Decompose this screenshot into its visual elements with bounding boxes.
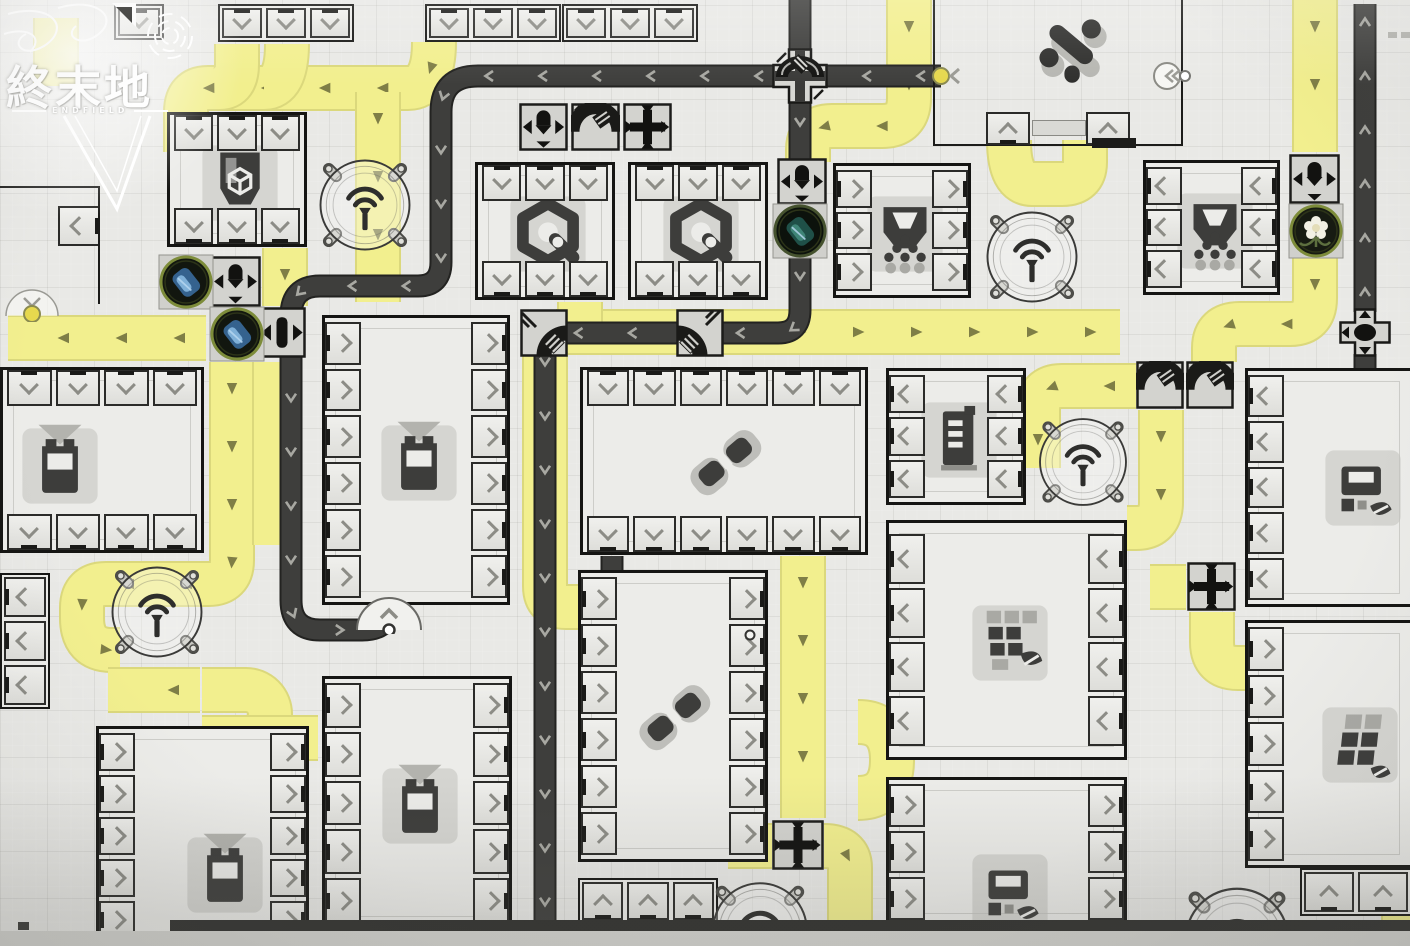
- chevron-icon: [620, 10, 640, 30]
- chevron-icon: [589, 636, 609, 656]
- port-tick: [890, 713, 894, 729]
- building-crusher[interactable]: [1143, 160, 1280, 295]
- port-tick: [580, 292, 596, 296]
- chevron-icon: [333, 333, 353, 353]
- building-assembler[interactable]: [475, 162, 615, 300]
- io-port[interactable]: [4, 621, 46, 661]
- splitter-icon: [1289, 154, 1340, 204]
- signal-tower[interactable]: [306, 146, 424, 264]
- io-port[interactable]: [473, 878, 509, 923]
- io-port[interactable]: [222, 8, 262, 38]
- chevron-icon: [333, 744, 353, 764]
- port-tick: [666, 9, 682, 13]
- port-tick: [832, 547, 848, 551]
- chevron-icon: [645, 170, 665, 190]
- io-port[interactable]: [726, 370, 768, 406]
- splitter-icon: [777, 158, 827, 205]
- io-port[interactable]: [889, 534, 925, 584]
- io-port[interactable]: [987, 417, 1023, 455]
- io-port[interactable]: [889, 831, 925, 874]
- io-port[interactable]: [99, 775, 135, 813]
- io-port[interactable]: [1248, 375, 1284, 417]
- io-port[interactable]: [1248, 558, 1284, 600]
- port-tick: [186, 239, 202, 243]
- io-port[interactable]: [99, 733, 135, 771]
- io-port[interactable]: [932, 212, 968, 250]
- io-port[interactable]: [325, 781, 361, 826]
- io-port[interactable]: [722, 261, 761, 297]
- ore-node[interactable]: [770, 201, 830, 261]
- chevron-icon: [68, 519, 88, 539]
- port-tick: [301, 828, 305, 844]
- io-port[interactable]: [118, 8, 160, 36]
- building-refiner[interactable]: [580, 367, 868, 555]
- port-tick: [537, 292, 553, 296]
- io-port[interactable]: [325, 462, 361, 505]
- io-port[interactable]: [889, 460, 925, 498]
- io-port[interactable]: [310, 8, 350, 38]
- building-entry-dome: [354, 592, 424, 634]
- chevron-icon: [844, 221, 864, 241]
- chevron-icon: [481, 891, 501, 911]
- io-port[interactable]: [678, 261, 717, 297]
- io-port[interactable]: [1088, 642, 1124, 692]
- io-port[interactable]: [654, 8, 694, 38]
- port-tick: [578, 9, 594, 13]
- io-port[interactable]: [1241, 167, 1277, 205]
- port-tick: [167, 371, 183, 375]
- chevron-icon: [645, 521, 665, 541]
- io-port[interactable]: [325, 878, 361, 923]
- port-tick: [1321, 907, 1337, 911]
- port-tick: [326, 475, 330, 491]
- belt-splitter-tile[interactable]: [777, 158, 827, 205]
- belt-merger-tile[interactable]: [772, 820, 824, 870]
- chevron-icon: [1096, 657, 1116, 677]
- port-tick: [890, 844, 894, 860]
- io-port[interactable]: [261, 115, 300, 151]
- io-port[interactable]: [582, 882, 623, 920]
- port-tick: [326, 844, 330, 860]
- io-port[interactable]: [1088, 534, 1124, 584]
- io-port[interactable]: [729, 577, 765, 620]
- io-port[interactable]: [889, 588, 925, 638]
- io-port[interactable]: [1248, 421, 1284, 463]
- io-port[interactable]: [587, 370, 629, 406]
- io-port[interactable]: [325, 683, 361, 728]
- port-tick: [1000, 140, 1016, 144]
- chevron-icon: [593, 894, 613, 914]
- chevron-icon: [576, 10, 596, 30]
- crossed-parts-decoration: [1026, 2, 1122, 102]
- io-port[interactable]: [587, 516, 629, 552]
- io-port[interactable]: [270, 775, 306, 813]
- io-port[interactable]: [471, 369, 507, 412]
- chevron-icon: [897, 469, 917, 489]
- ore-node[interactable]: [156, 252, 216, 312]
- flower-resource-node[interactable]: [1286, 201, 1346, 261]
- belt-corner-tile[interactable]: [520, 309, 568, 357]
- chevron-icon: [844, 179, 864, 199]
- port-tick: [326, 746, 330, 762]
- chevron-icon: [897, 549, 917, 569]
- refiner-icon: [633, 676, 719, 762]
- port-tick: [837, 181, 841, 197]
- chevron-icon: [731, 266, 751, 286]
- io-port[interactable]: [471, 462, 507, 505]
- io-port[interactable]: [325, 369, 361, 412]
- port-tick: [485, 9, 501, 13]
- belt-corner-tile[interactable]: [676, 309, 724, 357]
- chevron-icon: [333, 520, 353, 540]
- port-tick: [890, 386, 894, 402]
- io-port[interactable]: [153, 514, 198, 550]
- io-port[interactable]: [525, 165, 564, 201]
- io-port[interactable]: [429, 8, 469, 38]
- port-tick: [1147, 178, 1151, 194]
- io-port[interactable]: [581, 577, 617, 620]
- chevron-icon: [107, 826, 127, 846]
- building-greenhouse[interactable]: [886, 520, 1127, 760]
- chevron-icon: [589, 824, 609, 844]
- building-battery[interactable]: [0, 367, 204, 553]
- port-tick: [504, 844, 508, 860]
- io-port[interactable]: [325, 322, 361, 365]
- port-tick: [272, 239, 288, 243]
- chevron-icon: [483, 10, 503, 30]
- battery-icon: [376, 420, 462, 506]
- io-port[interactable]: [836, 212, 872, 250]
- io-port[interactable]: [56, 370, 101, 406]
- io-port[interactable]: [270, 817, 306, 855]
- flower-icon: [1286, 201, 1346, 261]
- port-tick: [167, 545, 183, 549]
- io-port[interactable]: [471, 322, 507, 365]
- io-port[interactable]: [7, 370, 52, 406]
- port-tick: [229, 116, 245, 120]
- signal-tower-icon: [1026, 405, 1140, 519]
- yard-circle-port[interactable]: [1147, 60, 1191, 92]
- io-port[interactable]: [325, 415, 361, 458]
- road-crossing-tile[interactable]: [772, 48, 828, 104]
- io-port[interactable]: [473, 683, 509, 728]
- io-port[interactable]: [1248, 467, 1284, 509]
- io-port[interactable]: [819, 370, 861, 406]
- io-port[interactable]: [932, 253, 968, 291]
- port-tick: [600, 547, 616, 551]
- ore-node[interactable]: [207, 304, 267, 364]
- building-floor: [335, 328, 497, 592]
- bridge-icon: [1136, 361, 1184, 409]
- building-solar[interactable]: [1245, 620, 1410, 868]
- io-port[interactable]: [889, 375, 925, 413]
- port-strip[interactable]: [578, 878, 718, 924]
- io-port[interactable]: [722, 165, 761, 201]
- belt-bridge-tile[interactable]: [1186, 361, 1234, 409]
- io-port[interactable]: [174, 208, 213, 244]
- io-port[interactable]: [680, 516, 722, 552]
- port-tick: [504, 746, 508, 762]
- belt-endpoint-port[interactable]: [931, 66, 965, 86]
- io-port[interactable]: [1088, 588, 1124, 638]
- io-port[interactable]: [581, 812, 617, 855]
- port-tick: [647, 166, 663, 170]
- chevron-icon: [1249, 259, 1269, 279]
- io-port[interactable]: [836, 170, 872, 208]
- io-port[interactable]: [729, 765, 765, 808]
- building-agri[interactable]: [886, 777, 1127, 927]
- io-port[interactable]: [1358, 872, 1408, 912]
- io-port[interactable]: [7, 514, 52, 550]
- port-tick: [100, 912, 104, 928]
- port-tick: [1249, 688, 1253, 704]
- port-tick: [502, 335, 506, 351]
- io-port[interactable]: [1088, 831, 1124, 874]
- port-tick: [785, 371, 801, 375]
- io-port[interactable]: [627, 882, 668, 920]
- io-port[interactable]: [889, 784, 925, 827]
- port-tick: [760, 826, 764, 842]
- io-port[interactable]: [104, 514, 149, 550]
- chevron-icon: [578, 170, 598, 190]
- io-port[interactable]: [569, 165, 608, 201]
- io-port[interactable]: [482, 261, 521, 297]
- chevron-icon: [897, 657, 917, 677]
- building-floor: [899, 533, 1114, 747]
- port-strip[interactable]: [0, 573, 50, 709]
- building-battery[interactable]: [322, 315, 510, 605]
- port-tick: [1375, 907, 1391, 911]
- io-port[interactable]: [1241, 209, 1277, 247]
- chevron-icon: [479, 567, 499, 587]
- circle-port-icon: [1147, 60, 1191, 92]
- io-port[interactable]: [633, 370, 675, 406]
- chevron-icon: [691, 521, 711, 541]
- chevron-icon: [278, 742, 298, 762]
- io-port[interactable]: [104, 370, 149, 406]
- io-port[interactable]: [517, 8, 557, 38]
- chevron-icon: [439, 10, 459, 30]
- io-port[interactable]: [1146, 167, 1182, 205]
- io-port[interactable]: [889, 417, 925, 455]
- solar-icon: [1317, 702, 1403, 788]
- io-port[interactable]: [772, 516, 814, 552]
- io-port[interactable]: [1248, 770, 1284, 814]
- io-port[interactable]: [889, 642, 925, 692]
- port-tick: [760, 591, 764, 607]
- port-strip[interactable]: [1300, 868, 1410, 916]
- chevron-icon: [1256, 734, 1276, 754]
- io-port[interactable]: [610, 8, 650, 38]
- io-port[interactable]: [4, 577, 46, 617]
- port-strip[interactable]: [425, 4, 561, 42]
- port-strip[interactable]: [218, 4, 354, 42]
- ore-icon: [156, 252, 216, 312]
- chevron-icon: [276, 10, 296, 30]
- building-battery[interactable]: [322, 676, 512, 930]
- io-port[interactable]: [473, 829, 509, 874]
- building-battery[interactable]: [96, 726, 309, 946]
- chevron-icon: [479, 473, 499, 493]
- conveyor-belt-surface: [264, 44, 287, 88]
- port-tick: [100, 786, 104, 802]
- io-port[interactable]: [1248, 512, 1284, 554]
- io-port[interactable]: [325, 509, 361, 552]
- io-port[interactable]: [1088, 784, 1124, 827]
- io-port[interactable]: [680, 370, 722, 406]
- io-port[interactable]: [635, 165, 674, 201]
- io-port[interactable]: [1248, 675, 1284, 719]
- port-strip[interactable]: [114, 4, 164, 40]
- chevron-icon: [15, 587, 35, 607]
- building-smelter[interactable]: [167, 112, 307, 247]
- port-tick: [5, 589, 9, 605]
- port-tick: [5, 633, 9, 649]
- building-crusher[interactable]: [833, 163, 971, 298]
- io-port[interactable]: [729, 671, 765, 714]
- io-port[interactable]: [726, 516, 768, 552]
- port-tick: [582, 732, 586, 748]
- io-port[interactable]: [1241, 250, 1277, 288]
- port-tick: [502, 522, 506, 538]
- io-port[interactable]: [987, 375, 1023, 413]
- io-port[interactable]: [473, 8, 513, 38]
- io-port[interactable]: [566, 8, 606, 38]
- io-port[interactable]: [270, 733, 306, 771]
- port-tick: [1272, 178, 1276, 194]
- io-port[interactable]: [270, 859, 306, 897]
- chevron-icon: [1154, 259, 1174, 279]
- io-port[interactable]: [99, 859, 135, 897]
- road-junction-node[interactable]: [1339, 308, 1391, 357]
- port-tick: [739, 371, 755, 375]
- conveyor-belt-surface: [220, 44, 237, 88]
- port-tick: [326, 569, 330, 585]
- io-port[interactable]: [4, 665, 46, 705]
- io-port[interactable]: [99, 817, 135, 855]
- io-port[interactable]: [471, 555, 507, 598]
- chevron-icon: [19, 519, 39, 539]
- port-strip[interactable]: [562, 4, 698, 42]
- signal-tower[interactable]: [98, 553, 216, 671]
- chevron-icon: [578, 266, 598, 286]
- io-port[interactable]: [217, 208, 256, 244]
- chevron-icon: [1096, 711, 1116, 731]
- chevron-icon: [940, 221, 960, 241]
- belt-splitter-tile[interactable]: [1289, 154, 1340, 204]
- port-connector: [1032, 120, 1086, 136]
- io-port[interactable]: [217, 115, 256, 151]
- crossing-icon: [772, 48, 828, 104]
- chevron-icon: [1096, 795, 1116, 815]
- signal-tower[interactable]: [973, 198, 1091, 316]
- io-port[interactable]: [471, 509, 507, 552]
- chevron-icon: [278, 826, 298, 846]
- io-port[interactable]: [581, 765, 617, 808]
- port-tick: [760, 638, 764, 654]
- building-agri[interactable]: [1245, 368, 1410, 607]
- belt-merger-tile[interactable]: [1187, 562, 1236, 611]
- belt-splitter-tile[interactable]: [519, 103, 568, 151]
- map-canvas[interactable]: 終末地 ENDFIELD: [0, 0, 1410, 946]
- io-port[interactable]: [889, 877, 925, 920]
- building-refiner[interactable]: [578, 570, 768, 862]
- building-floor: [593, 380, 855, 542]
- chevron-icon: [598, 375, 618, 395]
- io-port[interactable]: [525, 261, 564, 297]
- signal-tower[interactable]: [1026, 405, 1140, 519]
- io-port[interactable]: [261, 208, 300, 244]
- port-tick: [441, 9, 457, 13]
- io-port[interactable]: [772, 370, 814, 406]
- building-assembler[interactable]: [628, 162, 768, 300]
- port-tick: [837, 264, 841, 280]
- io-port[interactable]: [1248, 722, 1284, 766]
- io-port[interactable]: [325, 732, 361, 777]
- io-port[interactable]: [174, 115, 213, 151]
- io-port[interactable]: [889, 696, 925, 746]
- io-port[interactable]: [729, 718, 765, 761]
- io-port[interactable]: [1248, 817, 1284, 861]
- chevron-icon: [1154, 218, 1174, 238]
- io-port[interactable]: [473, 781, 509, 826]
- belt-bridge-tile[interactable]: [1136, 361, 1184, 409]
- io-port[interactable]: [569, 261, 608, 297]
- io-port[interactable]: [678, 165, 717, 201]
- belt-merger-tile[interactable]: [623, 103, 672, 151]
- io-port[interactable]: [471, 415, 507, 458]
- io-port[interactable]: [932, 170, 968, 208]
- building-rack[interactable]: [886, 368, 1026, 505]
- chevron-icon: [333, 427, 353, 447]
- port-tick: [595, 915, 611, 919]
- io-port[interactable]: [581, 718, 617, 761]
- io-port[interactable]: [581, 671, 617, 714]
- io-port[interactable]: [482, 165, 521, 201]
- port-tick: [582, 779, 586, 795]
- chevron-icon: [107, 742, 127, 762]
- port-tick: [234, 9, 250, 13]
- io-port[interactable]: [1248, 627, 1284, 671]
- io-port[interactable]: [987, 460, 1023, 498]
- io-port[interactable]: [729, 812, 765, 855]
- io-port[interactable]: [633, 516, 675, 552]
- io-port[interactable]: [1304, 872, 1354, 912]
- port-tick: [301, 870, 305, 886]
- io-port[interactable]: [1146, 250, 1182, 288]
- io-port[interactable]: [325, 829, 361, 874]
- io-port[interactable]: [986, 112, 1030, 145]
- io-port[interactable]: [836, 253, 872, 291]
- io-port[interactable]: [1088, 696, 1124, 746]
- io-port[interactable]: [266, 8, 306, 38]
- port-tick: [837, 222, 841, 238]
- chevron-icon: [227, 120, 247, 140]
- io-port[interactable]: [819, 516, 861, 552]
- belt-bridge-tile[interactable]: [571, 103, 620, 151]
- io-port[interactable]: [153, 370, 198, 406]
- io-port[interactable]: [1146, 209, 1182, 247]
- io-port[interactable]: [635, 261, 674, 297]
- io-port[interactable]: [581, 624, 617, 667]
- port-tick: [1119, 659, 1123, 675]
- io-port[interactable]: [473, 732, 509, 777]
- io-port[interactable]: [1088, 877, 1124, 920]
- io-port[interactable]: [56, 514, 101, 550]
- port-tick: [1119, 797, 1123, 813]
- belt-splitter-tile[interactable]: [210, 256, 261, 307]
- chevron-icon: [995, 427, 1015, 447]
